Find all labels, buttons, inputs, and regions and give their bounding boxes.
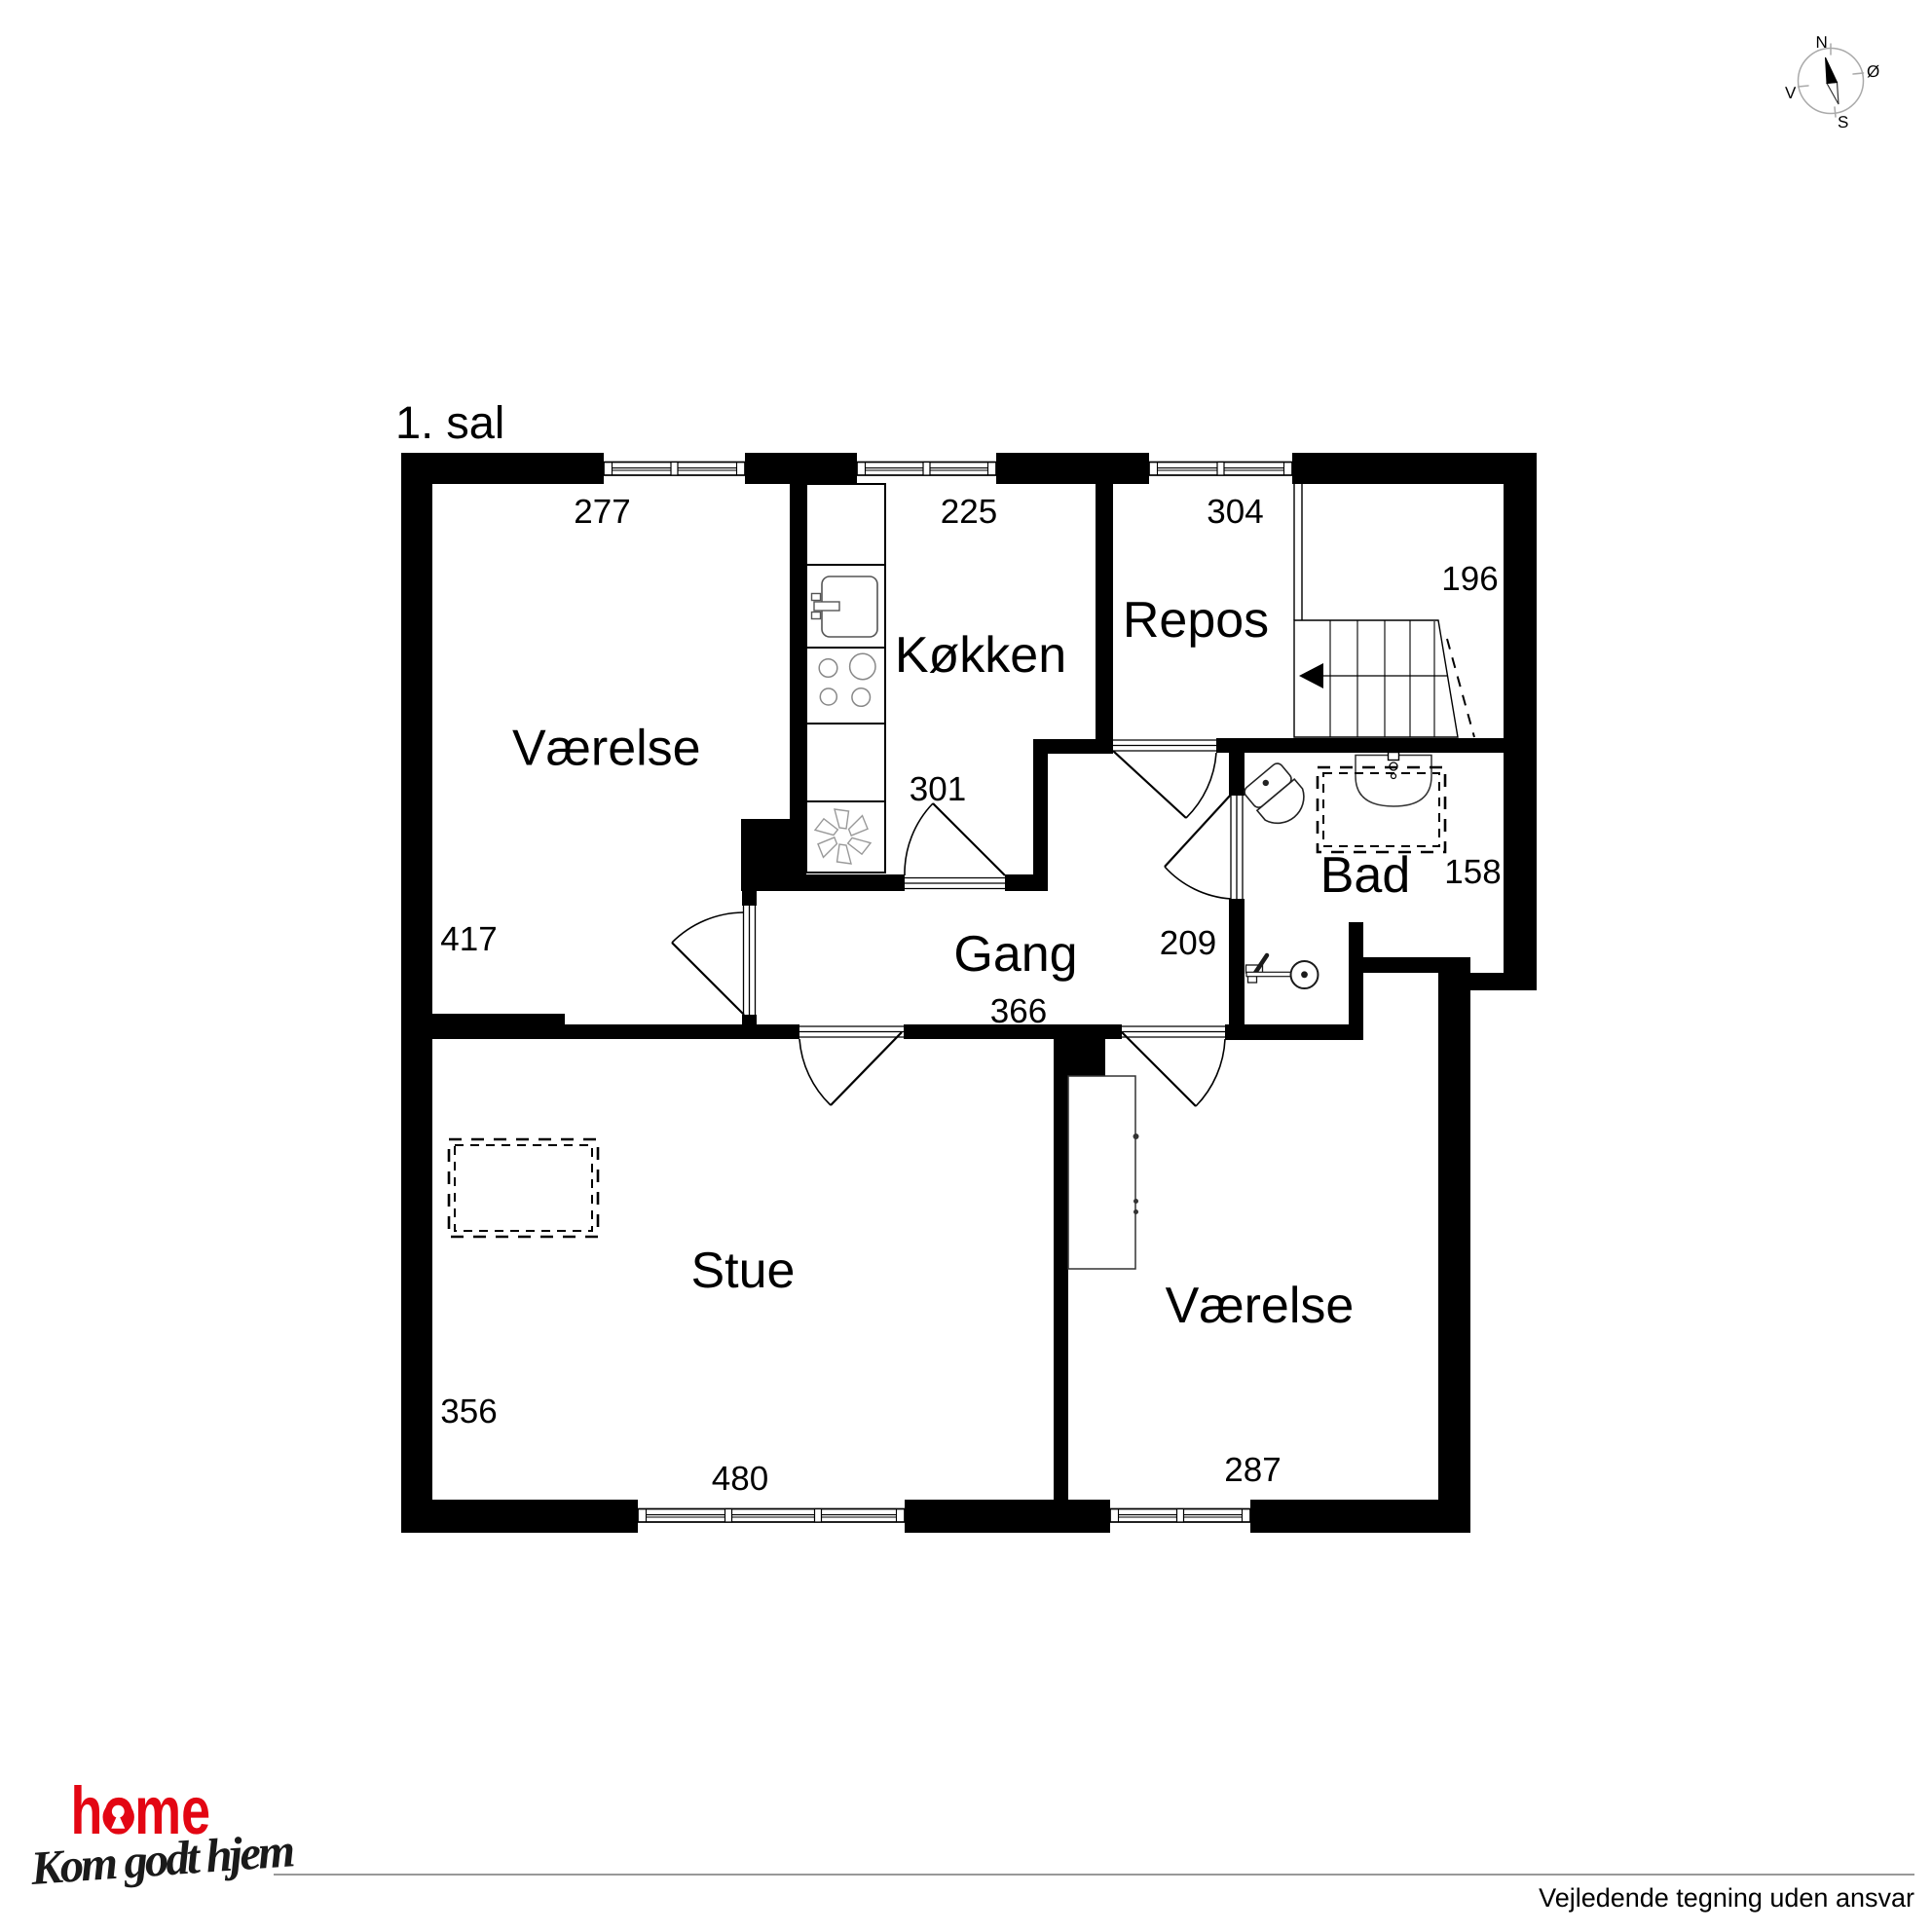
svg-text:Ø: Ø <box>1867 62 1879 81</box>
svg-text:480: 480 <box>712 1460 768 1498</box>
svg-text:356: 356 <box>440 1393 497 1430</box>
svg-text:Køkken: Køkken <box>895 627 1066 684</box>
svg-text:Stue: Stue <box>691 1243 796 1299</box>
svg-text:287: 287 <box>1224 1451 1281 1489</box>
svg-text:196: 196 <box>1441 560 1498 598</box>
svg-text:S: S <box>1838 113 1848 131</box>
svg-text:304: 304 <box>1207 493 1263 531</box>
svg-text:Bad: Bad <box>1320 847 1411 904</box>
svg-text:225: 225 <box>941 493 997 531</box>
svg-text:Værelse: Værelse <box>512 721 701 777</box>
svg-text:N: N <box>1816 33 1828 52</box>
svg-text:417: 417 <box>440 920 497 958</box>
svg-text:158: 158 <box>1444 853 1501 891</box>
svg-text:366: 366 <box>990 992 1047 1030</box>
svg-text:V: V <box>1785 84 1797 102</box>
svg-text:209: 209 <box>1160 924 1216 962</box>
svg-text:301: 301 <box>910 770 966 808</box>
svg-text:Værelse: Værelse <box>1166 1278 1355 1334</box>
svg-text:277: 277 <box>574 493 630 531</box>
svg-text:1. sal: 1. sal <box>395 396 504 448</box>
svg-text:Gang: Gang <box>953 926 1077 983</box>
svg-text:Repos: Repos <box>1123 592 1269 649</box>
svg-text:Vejledende tegning uden ansvar: Vejledende tegning uden ansvar <box>1539 1883 1914 1913</box>
